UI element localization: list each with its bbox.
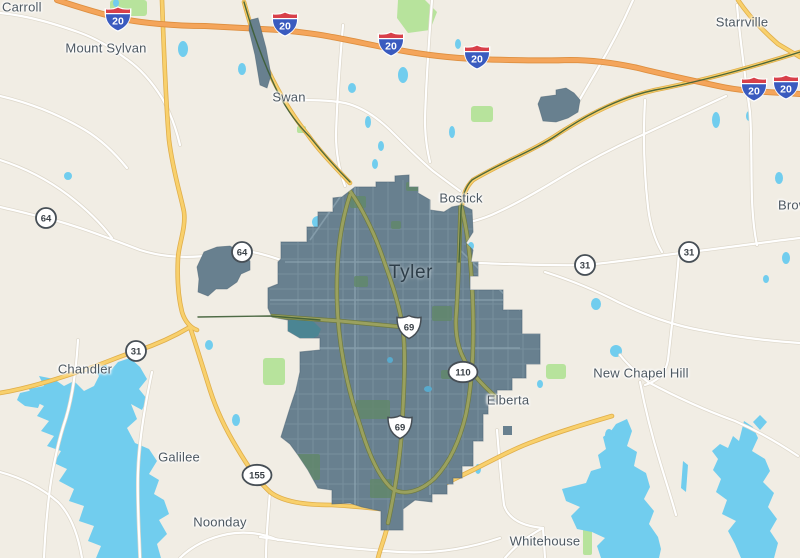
map-base-layer [0,0,800,558]
lake-tyler [562,415,778,558]
lake-palestine [17,358,169,558]
map-canvas[interactable]: Carroll Mount Sylvan Swan Starrville Bos… [0,0,800,558]
